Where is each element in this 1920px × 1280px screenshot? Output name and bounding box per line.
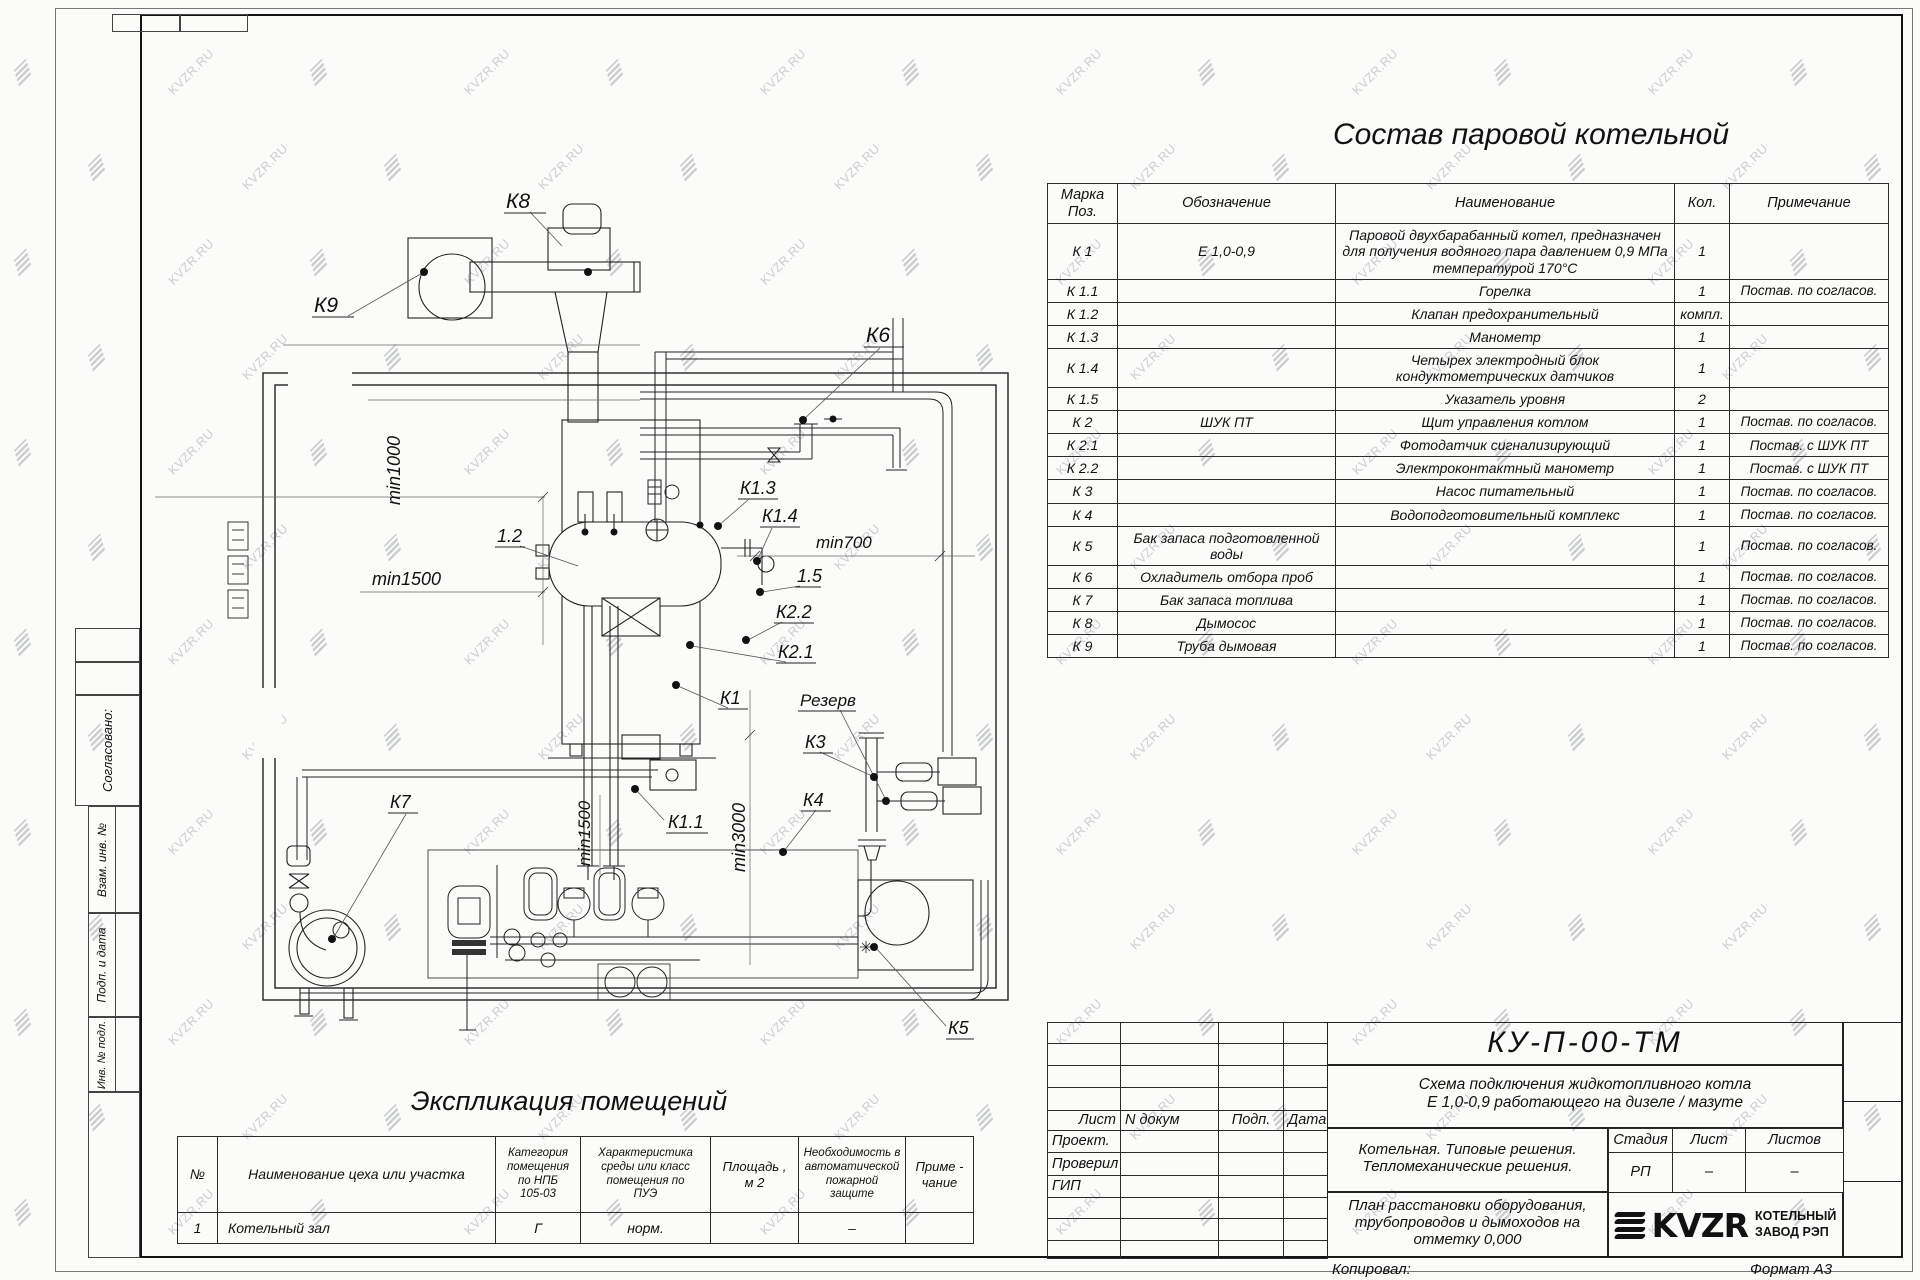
sostav-cell [1336, 588, 1675, 611]
sostav-cell: Постав. по согласов. [1730, 635, 1889, 658]
sheet-line2: трубопроводов и дымоходов на [1328, 1214, 1607, 1231]
sostav-cell [1118, 348, 1336, 387]
watermark-logo-icon [14, 248, 31, 276]
margin-cell [88, 1092, 140, 1258]
scheme-title: Схема подключения жидкотопливного котла … [1327, 1065, 1843, 1128]
water-tank [858, 880, 973, 970]
sostav-cell: К 1.1 [1048, 279, 1118, 302]
copied-label: Копировал: [1332, 1261, 1411, 1278]
vzam-label: Взам. инв. № [95, 822, 109, 896]
sostav-cell [1118, 325, 1336, 348]
sheet-line1: План расстановки оборудования, [1328, 1197, 1607, 1214]
ekspl-cell: норм. [581, 1213, 711, 1244]
frame-corner-box [112, 14, 180, 32]
sostav-row: К 3Насос питательный1Постав. по согласов… [1048, 480, 1889, 503]
plan-label: К7 [390, 792, 412, 812]
watermark-text: KVZR.RU [1424, 0, 1475, 3]
ekspl-cell: Котельный зал [218, 1213, 496, 1244]
sostav-row: К 1Е 1,0-0,9Паровой двухбарабанный котел… [1048, 224, 1889, 279]
tb-header: Лист [1048, 1111, 1121, 1131]
plan-label: min700 [816, 533, 872, 552]
watermark-logo-icon [14, 1008, 31, 1036]
kvzr-logo-text: KVZR [1652, 1206, 1748, 1245]
sostav-cell [1336, 612, 1675, 635]
sostav-cell: 1 [1675, 480, 1730, 503]
sostav-cell: 1 [1675, 612, 1730, 635]
sostav-cell: К 2.2 [1048, 457, 1118, 480]
room-walls [263, 373, 1008, 1000]
ekspl-header: Необходимость в автоматической пожарной … [799, 1137, 906, 1213]
logo-cell: KVZR КОТЕЛЬНЫЙ ЗАВОД РЭП [1608, 1192, 1843, 1258]
sostav-cell: Четырех электродный блок кондуктометриче… [1336, 348, 1675, 387]
sostav-cell: К 1.4 [1048, 348, 1118, 387]
sostav-cell: К 1 [1048, 224, 1118, 279]
sostav-row: К 1.4Четырех электродный блок кондуктоме… [1048, 348, 1889, 387]
ekspl-table: № Наименование цеха или участка Категори… [177, 1136, 974, 1244]
sostav-cell [1336, 635, 1675, 658]
tb-header-row: Лист N докум Подп. Дата [1048, 1111, 1328, 1131]
frame-corner-box [180, 14, 248, 32]
sostav-row: К 2.2Электроконтактный манометр1Постав. … [1048, 457, 1889, 480]
ekspl-cell [906, 1213, 974, 1244]
plan-label: К3 [805, 732, 826, 752]
sostav-cell [1118, 279, 1336, 302]
sostav-row: К 1.2Клапан предохранительныйкомпл. [1048, 302, 1889, 325]
approved-label: Согласовано: [100, 709, 115, 792]
sostav-row: К 1.3Манометр1 [1048, 325, 1889, 348]
stage-header: Листов [1746, 1129, 1844, 1153]
tb-role: Проверил [1048, 1153, 1121, 1176]
doc-code: КУ-П-00-ТМ [1327, 1022, 1843, 1065]
section-line1: Котельная. Типовые решения. [1328, 1141, 1607, 1158]
sostav-cell: К 8 [1048, 612, 1118, 635]
sostav-cell [1730, 325, 1889, 348]
sostav-cell: ШУК ПТ [1118, 411, 1336, 434]
sostav-cell: Горелка [1336, 279, 1675, 302]
plan-label: К2.1 [778, 642, 814, 662]
sostav-cell: 1 [1675, 348, 1730, 387]
watermark-text: KVZR.RU [832, 0, 883, 3]
sostav-cell: Дымосос [1118, 612, 1336, 635]
sostav-cell [1118, 457, 1336, 480]
sostav-cell: 1 [1675, 526, 1730, 565]
sostav-cell: 1 [1675, 279, 1730, 302]
sostav-cell: Труба дымовая [1118, 635, 1336, 658]
ekspl-title: Экспликация помещений [269, 1086, 869, 1117]
plan-label: К8 [506, 190, 530, 213]
plan-label: К5 [948, 1018, 970, 1038]
sostav-cell: Постав. по согласов. [1730, 526, 1889, 565]
plan-label: min1500 [372, 569, 441, 589]
ekspl-cell: – [799, 1213, 906, 1244]
ekspl-header: Площадь , м 2 [711, 1137, 799, 1213]
tb-role: Проект. [1048, 1131, 1121, 1153]
plan-label: К6 [866, 324, 890, 347]
sostav-cell: Постав. с ШУК ПТ [1730, 457, 1889, 480]
ekspl-header: Наименование цеха или участка [218, 1137, 496, 1213]
kvzr-logo-icon [1615, 1209, 1645, 1241]
kvzr-logo-subtitle: КОТЕЛЬНЫЙ ЗАВОД РЭП [1755, 1209, 1836, 1240]
sostav-header: Кол. [1675, 184, 1730, 224]
sostav-cell [1118, 480, 1336, 503]
sostav-row: К 2.1Фотодатчик сигнализирующий1Постав. … [1048, 434, 1889, 457]
sostav-cell: К 2.1 [1048, 434, 1118, 457]
sostav-cell: К 5 [1048, 526, 1118, 565]
margin-cell [75, 628, 140, 662]
plan-label: Резерв [800, 691, 856, 710]
stage-header: Стадия [1609, 1129, 1673, 1153]
sostav-cell: Электроконтактный манометр [1336, 457, 1675, 480]
sostav-cell [1118, 503, 1336, 526]
chimney-assembly [408, 204, 640, 422]
sostav-cell: К 6 [1048, 565, 1118, 588]
scheme-line2: Е 1,0-0,9 работающего на дизеле / мазуте [1328, 1094, 1842, 1112]
titleblock-right-strip [1843, 1022, 1903, 1258]
watermark-text: KVZR.RU [536, 0, 587, 3]
ekspl-header: Категория помещения по НПБ 105-03 [496, 1137, 581, 1213]
sostav-cell: Фотодатчик сигнализирующий [1336, 434, 1675, 457]
titleblock-left-table: Лист N докум Подп. Дата Проект. Проверил… [1047, 1022, 1328, 1259]
floor-plan: К8К9К6min10001.2min1500К1.3К1.4min7001.5… [140, 150, 1040, 1060]
sostav-cell: К 4 [1048, 503, 1118, 526]
sostav-cell: Паровой двухбарабанный котел, предназнач… [1336, 224, 1675, 279]
sostav-cell: 1 [1675, 503, 1730, 526]
section-line2: Тепломеханические решения. [1328, 1158, 1607, 1175]
sostav-header: Примечание [1730, 184, 1889, 224]
watermark-logo-icon [14, 628, 31, 656]
stage-value: – [1673, 1153, 1746, 1193]
sostav-cell: К 1.2 [1048, 302, 1118, 325]
stage-value: РП [1609, 1153, 1673, 1193]
sostav-cell: Бак запаса топлива [1118, 588, 1336, 611]
sostav-header: Обозначение [1118, 184, 1336, 224]
sheet-title: План расстановки оборудования, трубопров… [1327, 1192, 1608, 1258]
sostav-cell: 1 [1675, 565, 1730, 588]
margin-cell [75, 662, 140, 695]
sostav-title: Состав паровой котельной [1181, 118, 1881, 152]
sostav-cell: Насос питательный [1336, 480, 1675, 503]
inv-label: Инв. № подл. [96, 1020, 108, 1088]
tb-header: N докум [1121, 1111, 1219, 1131]
drawing-sheet: { "watermark": { "text": "KVZR.RU" }, "f… [0, 0, 1920, 1280]
sostav-row: К 1.5Указатель уровня2 [1048, 388, 1889, 411]
sostav-cell: Постав. по согласов. [1730, 565, 1889, 588]
plan-label: min3000 [729, 803, 749, 872]
sostav-cell: 1 [1675, 434, 1730, 457]
sostav-cell [1730, 302, 1889, 325]
sostav-cell [1118, 302, 1336, 325]
wall-panels [228, 522, 248, 618]
sostav-cell [1336, 526, 1675, 565]
plan-label: К4 [803, 790, 824, 810]
sostav-table: Марка Поз. Обозначение Наименование Кол.… [1047, 183, 1889, 658]
plan-label: К1.4 [762, 506, 798, 526]
plan-label: К1 [720, 688, 741, 708]
plan-label: К9 [314, 294, 338, 317]
sostav-cell: К 2 [1048, 411, 1118, 434]
sostav-row: К 8Дымосос1Постав. по согласов. [1048, 612, 1889, 635]
tb-header: Дата [1284, 1111, 1328, 1131]
sostav-cell: К 7 [1048, 588, 1118, 611]
sostav-cell: К 1.3 [1048, 325, 1118, 348]
plan-label: 1.2 [497, 526, 522, 546]
margin-cell-vzam: Взам. инв. № [88, 806, 140, 913]
sostav-cell: 1 [1675, 411, 1730, 434]
sostav-cell: Клапан предохранительный [1336, 302, 1675, 325]
sostav-cell: Постав. с ШУК ПТ [1730, 434, 1889, 457]
ekspl-cell [711, 1213, 799, 1244]
plan-label: 1.5 [797, 566, 823, 586]
sostav-row: К 2ШУК ПТЩит управления котлом1Постав. п… [1048, 411, 1889, 434]
podp-data-label: Подп. и дата [95, 927, 109, 1002]
sostav-cell: Манометр [1336, 325, 1675, 348]
sostav-cell: 1 [1675, 457, 1730, 480]
margin-cell-podp: Подп. и дата [88, 913, 140, 1017]
plan-label: К2.2 [776, 602, 812, 622]
sostav-cell: Постав. по согласов. [1730, 588, 1889, 611]
sostav-cell [1336, 565, 1675, 588]
sostav-cell [1730, 224, 1889, 279]
sostav-cell: компл. [1675, 302, 1730, 325]
sostav-cell [1118, 434, 1336, 457]
sostav-row: К 6Охладитель отбора проб1Постав. по сог… [1048, 565, 1889, 588]
margin-cell-approved: Согласовано: [75, 695, 140, 806]
sostav-header-row: Марка Поз. Обозначение Наименование Кол.… [1048, 184, 1889, 224]
sostav-cell: Бак запаса подготовленной воды [1118, 526, 1336, 565]
ekspl-header: Характеристика среды или класс помещения… [581, 1137, 711, 1213]
plan-label: min1000 [384, 436, 404, 505]
sostav-cell: К 1.5 [1048, 388, 1118, 411]
sostav-row: К 4Водоподготовительный комплекс1Постав.… [1048, 503, 1889, 526]
ekspl-header-row: № Наименование цеха или участка Категори… [178, 1137, 974, 1213]
stage-table: Стадия Лист Листов РП – – [1608, 1128, 1844, 1193]
sostav-cell: Охладитель отбора проб [1118, 565, 1336, 588]
plan-label: min1500 [575, 800, 594, 866]
sostav-cell: Водоподготовительный комплекс [1336, 503, 1675, 526]
plan-label: К1.1 [668, 812, 704, 832]
sostav-row: К 5Бак запаса подготовленной воды1Постав… [1048, 526, 1889, 565]
sostav-cell: Щит управления котлом [1336, 411, 1675, 434]
margin-cell-inv: Инв. № подл. [88, 1017, 140, 1092]
stage-header: Лист [1673, 1129, 1746, 1153]
sostav-cell: 1 [1675, 588, 1730, 611]
sostav-cell: 1 [1675, 635, 1730, 658]
sostav-cell: Постав. по согласов. [1730, 612, 1889, 635]
sostav-header: Марка Поз. [1048, 184, 1118, 224]
ekspl-cell: 1 [178, 1213, 218, 1244]
tb-role: ГИП [1048, 1176, 1121, 1198]
tb-header: Подп. [1219, 1111, 1284, 1131]
ekspl-header: Приме - чание [906, 1137, 974, 1213]
water-treatment-skid [428, 850, 858, 1030]
sostav-cell: Постав. по согласов. [1730, 480, 1889, 503]
ekspl-row: 1 Котельный зал Г норм. – [178, 1213, 974, 1244]
format-label: Формат А3 [1750, 1261, 1832, 1278]
watermark-text: KVZR.RU [1128, 0, 1179, 3]
plan-label: К1.3 [740, 478, 776, 498]
sostav-cell: Е 1,0-0,9 [1118, 224, 1336, 279]
sostav-cell: 1 [1675, 325, 1730, 348]
dimension-lines [155, 345, 975, 965]
stage-value: – [1746, 1153, 1844, 1193]
sostav-cell: К 9 [1048, 635, 1118, 658]
ekspl-cell: Г [496, 1213, 581, 1244]
sostav-cell [1118, 388, 1336, 411]
watermark-logo-icon [14, 1198, 31, 1226]
sostav-cell [1730, 348, 1889, 387]
fuel-tank [287, 846, 365, 1020]
sostav-row: К 7Бак запаса топлива1Постав. по согласо… [1048, 588, 1889, 611]
watermark-logo-icon [14, 818, 31, 846]
watermark-logo-icon [14, 438, 31, 466]
section-title: Котельная. Типовые решения. Тепломеханич… [1327, 1128, 1608, 1192]
watermark-text: KVZR.RU [240, 0, 291, 3]
ekspl-header: № [178, 1137, 218, 1213]
sheet-line3: отметку 0,000 [1328, 1231, 1607, 1248]
sostav-cell: 1 [1675, 224, 1730, 279]
sostav-cell: Постав. по согласов. [1730, 411, 1889, 434]
sostav-cell: Постав. по согласов. [1730, 279, 1889, 302]
sostav-cell: К 3 [1048, 480, 1118, 503]
sostav-cell: 2 [1675, 388, 1730, 411]
sostav-cell: Постав. по согласов. [1730, 503, 1889, 526]
sostav-header: Наименование [1336, 184, 1675, 224]
sostav-cell [1730, 388, 1889, 411]
watermark-logo-icon [14, 58, 31, 86]
sostav-row: К 9Труба дымовая1Постав. по согласов. [1048, 635, 1889, 658]
scheme-line1: Схема подключения жидкотопливного котла [1328, 1076, 1842, 1094]
sostav-row: К 1.1Горелка1Постав. по согласов. [1048, 279, 1889, 302]
sostav-cell: Указатель уровня [1336, 388, 1675, 411]
watermark-text: KVZR.RU [1720, 0, 1771, 3]
